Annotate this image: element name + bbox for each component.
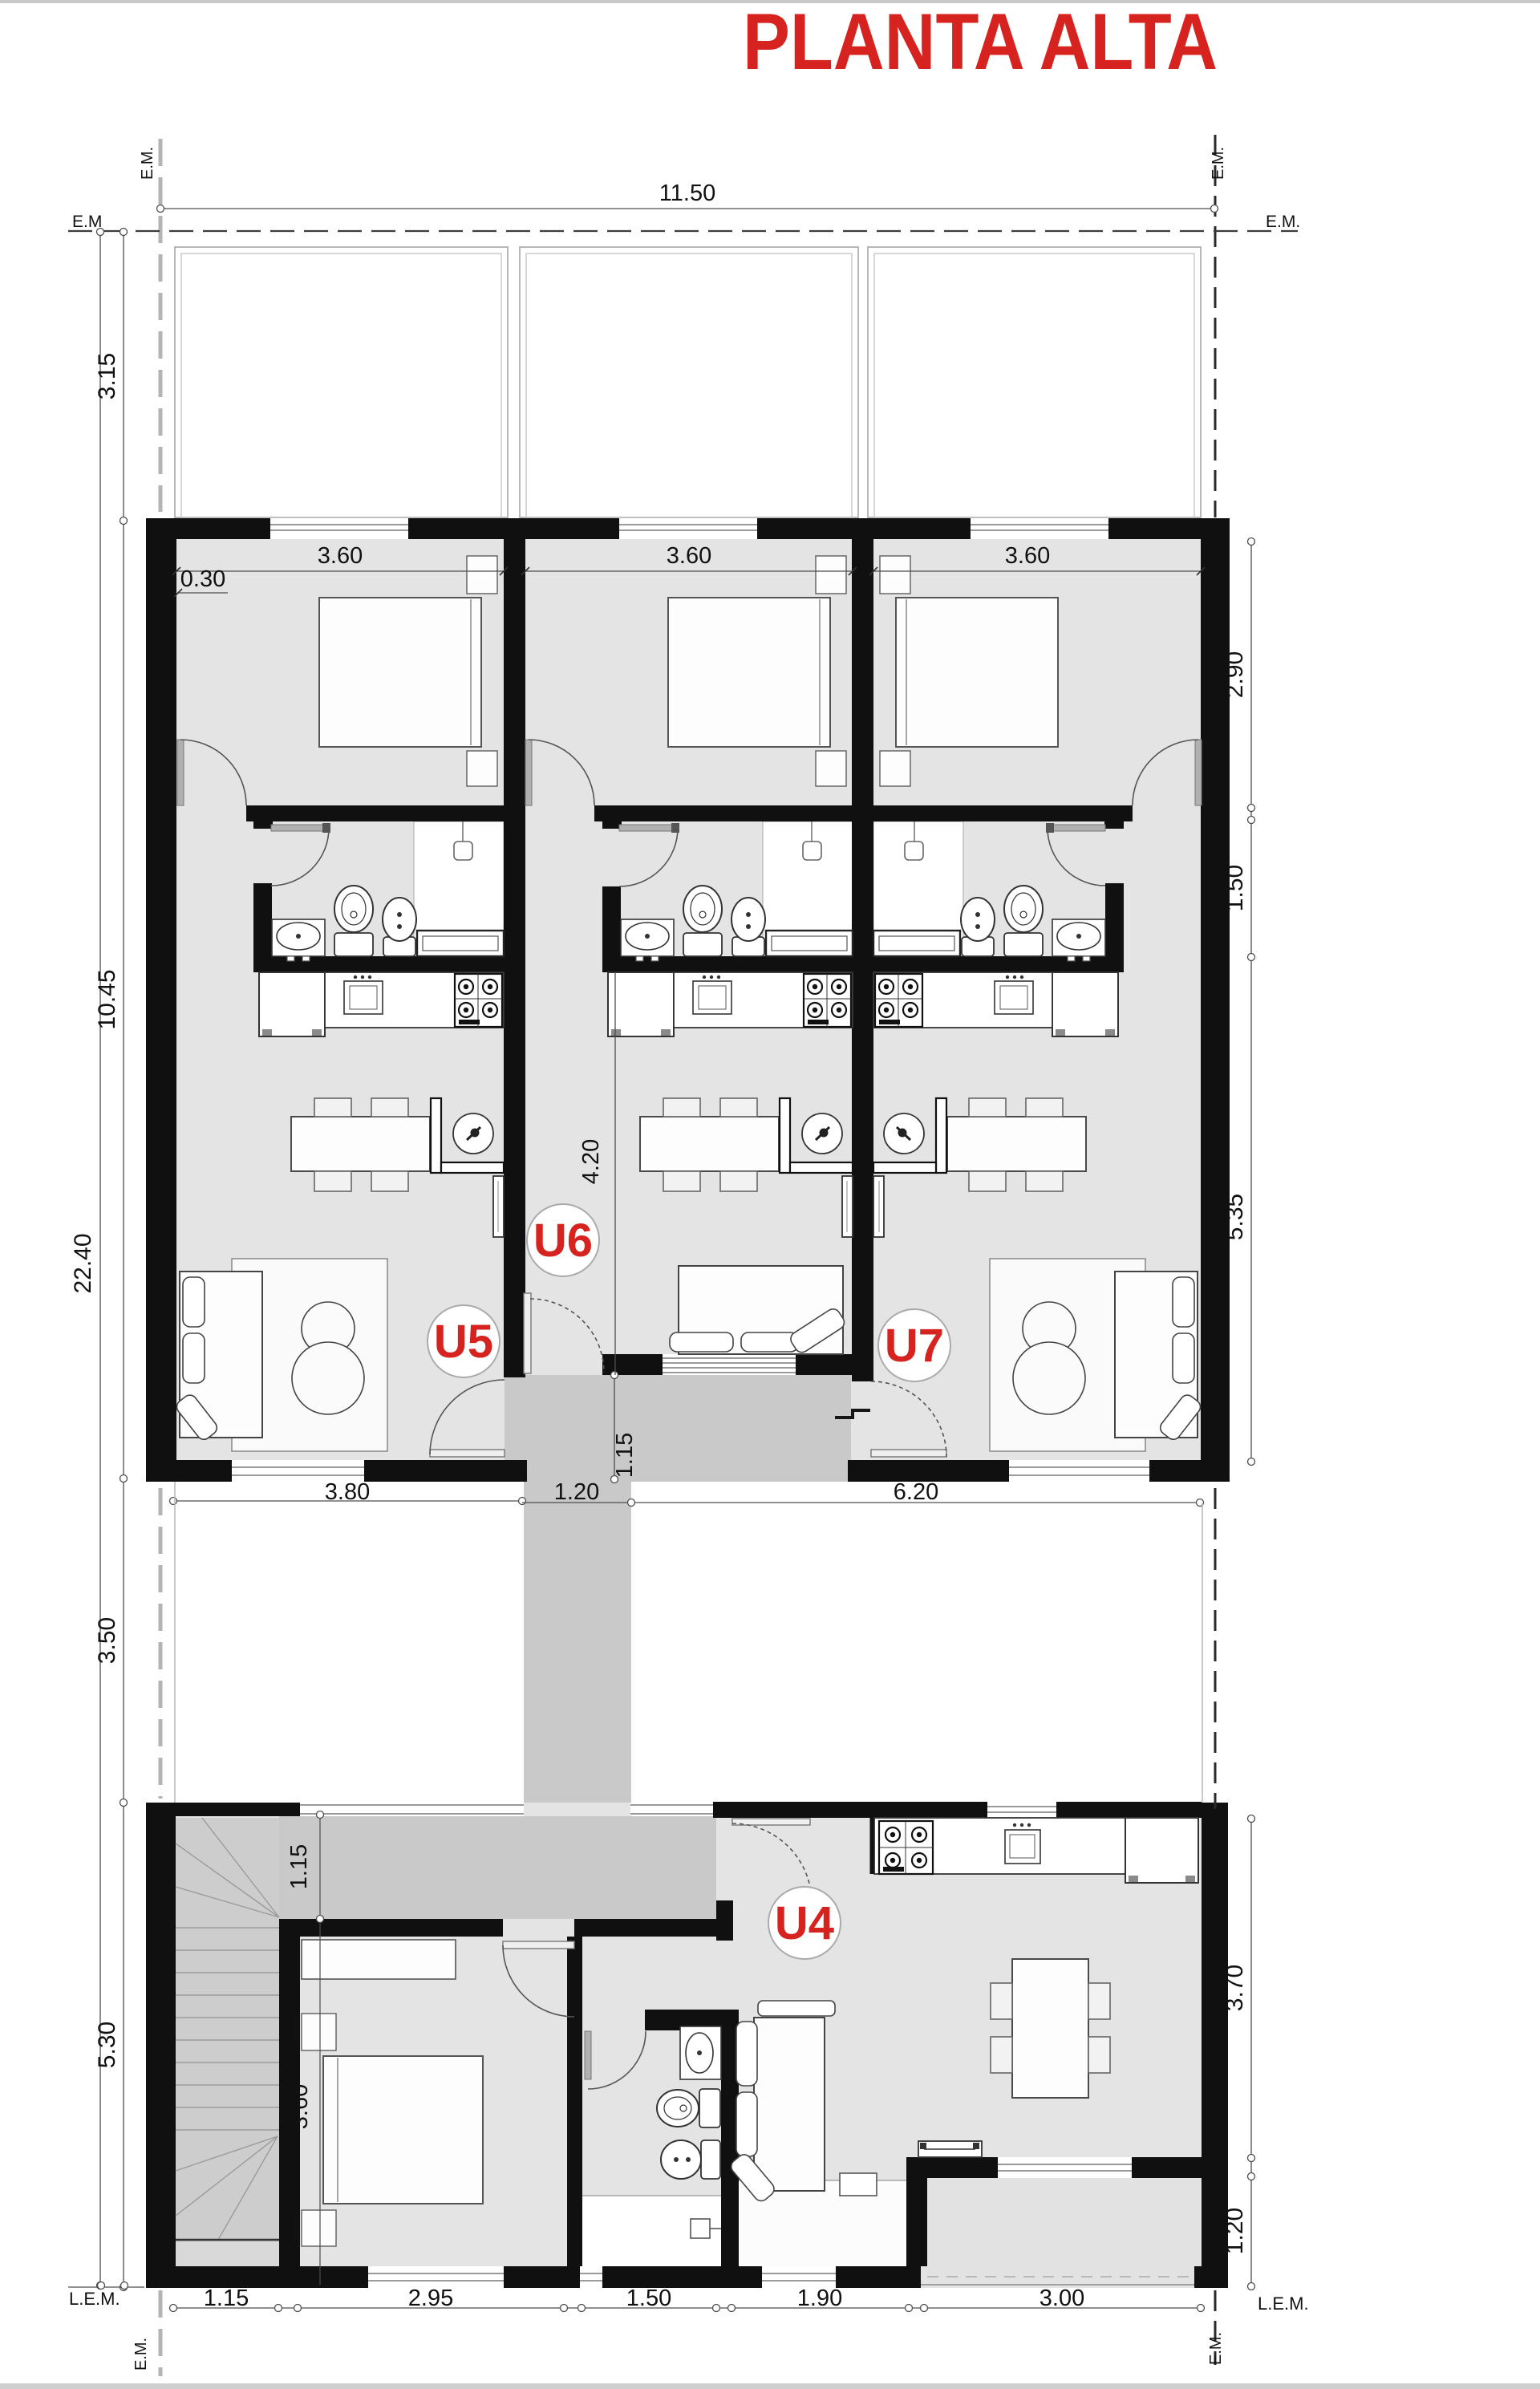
svg-text:E.M: E.M xyxy=(72,213,102,231)
svg-text:3.00: 3.00 xyxy=(1039,2286,1084,2311)
svg-text:U4: U4 xyxy=(775,1897,834,1949)
svg-text:PLANTA ALTA: PLANTA ALTA xyxy=(743,0,1218,86)
svg-text:E.M.: E.M. xyxy=(139,147,156,180)
svg-text:11.50: 11.50 xyxy=(659,180,715,206)
svg-text:3.15: 3.15 xyxy=(94,353,120,400)
svg-text:1.15: 1.15 xyxy=(204,2286,249,2311)
svg-text:1.20: 1.20 xyxy=(1222,2208,1248,2254)
svg-text:3.80: 3.80 xyxy=(325,1479,370,1505)
svg-text:1.50: 1.50 xyxy=(1222,865,1248,911)
svg-text:2.95: 2.95 xyxy=(408,2286,453,2311)
svg-text:3.70: 3.70 xyxy=(1222,1965,1248,2011)
svg-text:L.E.M.: L.E.M. xyxy=(69,2289,120,2309)
svg-text:L.E.M.: L.E.M. xyxy=(1258,2294,1309,2314)
svg-text:1.50: 1.50 xyxy=(626,2286,671,2311)
svg-text:1.90: 1.90 xyxy=(797,2286,842,2311)
svg-text:3.60: 3.60 xyxy=(1005,543,1050,569)
svg-text:1.15: 1.15 xyxy=(612,1433,638,1478)
svg-text:E.M.: E.M. xyxy=(1210,147,1227,180)
svg-text:3.60: 3.60 xyxy=(318,543,363,569)
svg-text:U6: U6 xyxy=(533,1215,593,1267)
svg-text:3.60: 3.60 xyxy=(287,2084,313,2129)
svg-text:22.40: 22.40 xyxy=(70,1233,96,1293)
svg-text:0.30: 0.30 xyxy=(180,566,225,592)
svg-text:3.60: 3.60 xyxy=(667,543,711,569)
svg-text:5.30: 5.30 xyxy=(94,2022,120,2068)
svg-text:2.90: 2.90 xyxy=(1222,651,1248,698)
svg-text:10.45: 10.45 xyxy=(94,969,120,1029)
svg-text:1.20: 1.20 xyxy=(554,1479,599,1505)
svg-text:3.50: 3.50 xyxy=(94,1617,120,1664)
svg-text:U5: U5 xyxy=(434,1316,493,1368)
svg-text:E.M.: E.M. xyxy=(1207,2332,1225,2365)
svg-text:4.20: 4.20 xyxy=(578,1139,604,1184)
svg-text:1.15: 1.15 xyxy=(286,1844,312,1889)
svg-text:5.35: 5.35 xyxy=(1222,1194,1248,1240)
svg-text:E.M.: E.M. xyxy=(132,2338,150,2371)
svg-text:6.20: 6.20 xyxy=(894,1479,938,1505)
svg-text:E.M.: E.M. xyxy=(1266,213,1300,231)
svg-text:U7: U7 xyxy=(885,1320,944,1372)
